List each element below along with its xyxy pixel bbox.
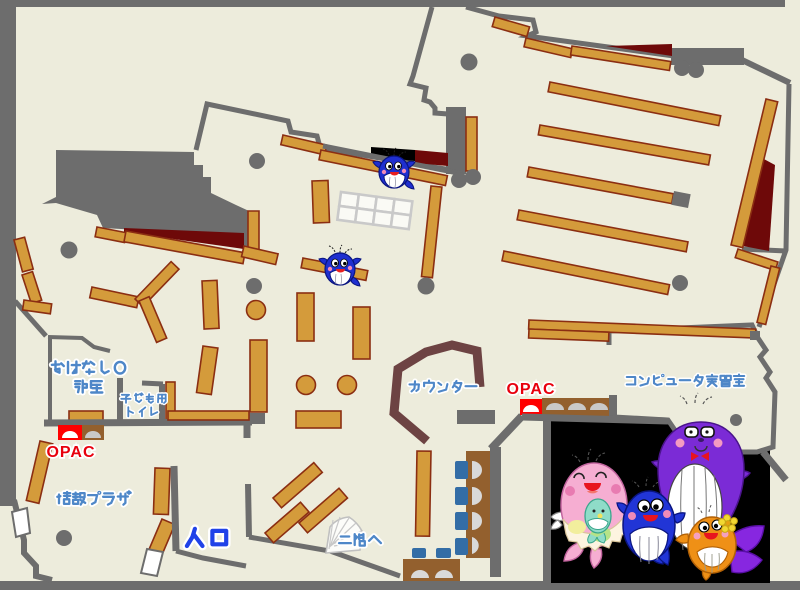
svg-text:OPAC: OPAC [46,444,95,461]
svg-text:OPAC: OPAC [506,381,555,398]
